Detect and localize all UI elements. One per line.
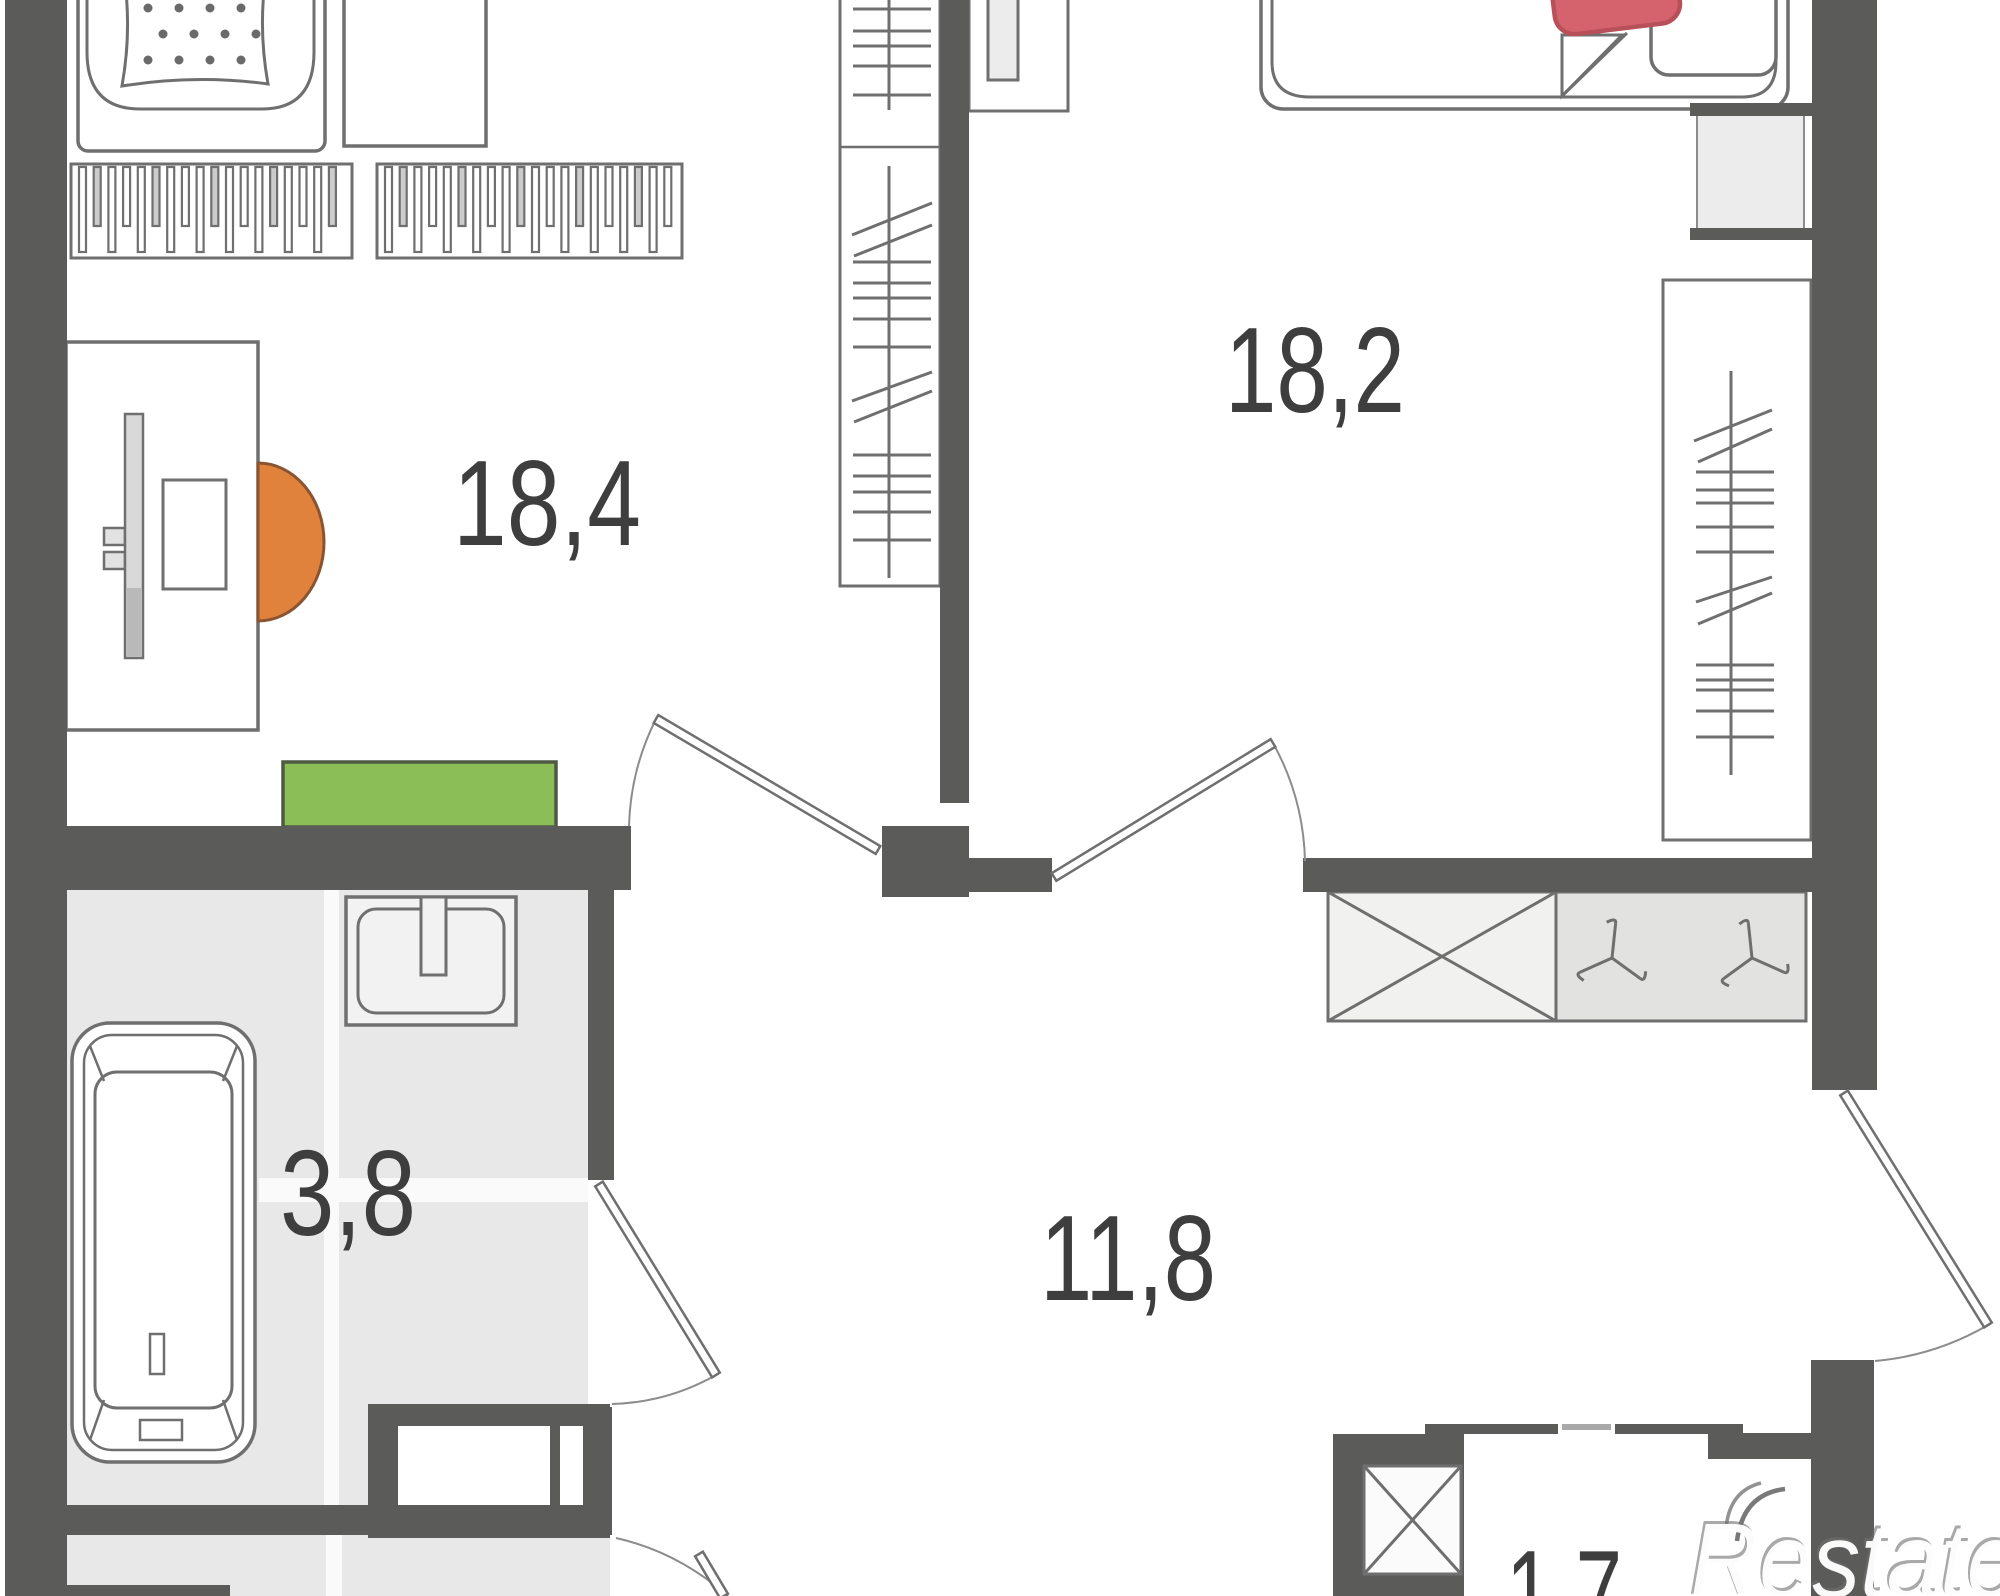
svg-text:1,7: 1,7 [1506, 1525, 1622, 1596]
svg-text:11,8: 11,8 [1040, 1190, 1216, 1326]
svg-text:3,8: 3,8 [280, 1125, 416, 1261]
svg-text:18,4: 18,4 [453, 435, 641, 571]
svg-text:18,2: 18,2 [1225, 302, 1405, 438]
svg-text:Restate: Restate [1690, 1502, 2000, 1596]
